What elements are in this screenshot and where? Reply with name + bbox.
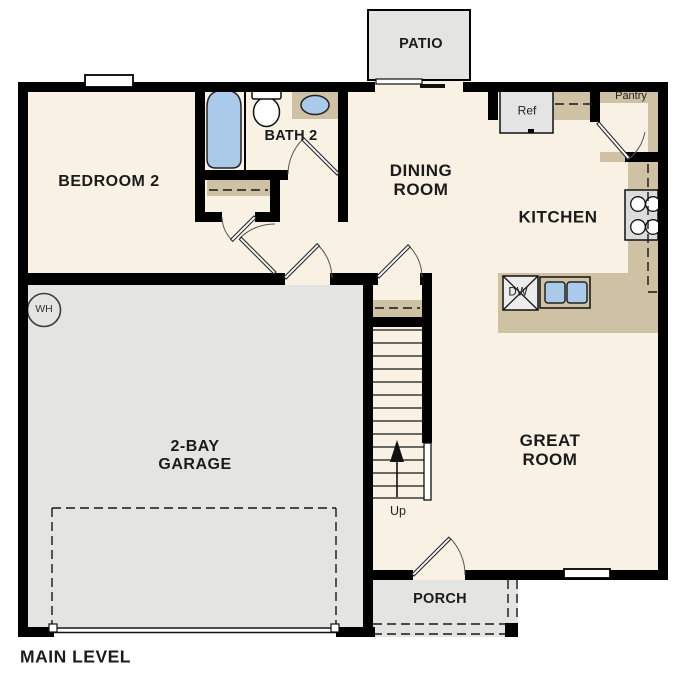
garage-door-jamb [49,624,57,632]
label-ref: Ref [518,104,537,117]
wall-closet-stub-left [195,212,222,222]
plan-title: MAIN LEVEL [20,647,131,668]
label-dining: DINING ROOM [390,161,453,199]
label-great-room: GREAT ROOM [520,431,581,469]
wall-stair-east [422,273,432,443]
bedroom-window [85,75,133,87]
kitchen-sink [540,277,590,308]
wall-ref-stub [488,92,498,120]
burner-icon [631,220,646,235]
burner-icon [631,197,646,212]
bedroom-closet-shelf [207,180,270,196]
label-bedroom2: BEDROOM 2 [58,173,159,191]
label-porch: PORCH [413,591,467,607]
label-bath2: BATH 2 [264,128,317,144]
bathtub [207,90,241,168]
wall-front-right [465,570,658,580]
great-room-window [564,569,610,578]
wall-pantry-stub [590,92,600,122]
wall-tub-alcove [195,92,205,180]
label-wh: WH [35,304,53,316]
stair-railing [424,443,431,500]
label-garage: 2-BAY GARAGE [158,438,231,474]
wall-closet-stub-right [255,212,280,222]
wall-garage-top-a [18,273,285,285]
wall-stair-closet [373,317,422,327]
wall-top-left [18,82,375,92]
wall-front-left [373,570,413,580]
wall-stair-west [363,273,373,637]
garage-door-jamb [331,624,339,632]
wall-bath-south [195,170,288,180]
refrigerator-tick [528,129,534,133]
floor-plan: PATIO BEDROOM 2 BATH 2 DINING ROOM KITCH… [0,0,687,687]
wall-west [18,82,28,637]
label-pantry: Pantry [615,90,647,102]
porch-post [505,623,518,637]
wall-dining-west [338,92,348,222]
label-up: Up [390,504,406,518]
porch-floor [373,580,518,637]
label-patio: PATIO [399,36,443,52]
bathroom-sink [301,96,329,115]
wall-tub-divider [244,92,246,172]
floor-plan-drawing [0,0,687,687]
label-dw: DW [508,287,527,300]
label-kitchen: KITCHEN [518,207,597,226]
toilet-bowl [254,98,280,127]
